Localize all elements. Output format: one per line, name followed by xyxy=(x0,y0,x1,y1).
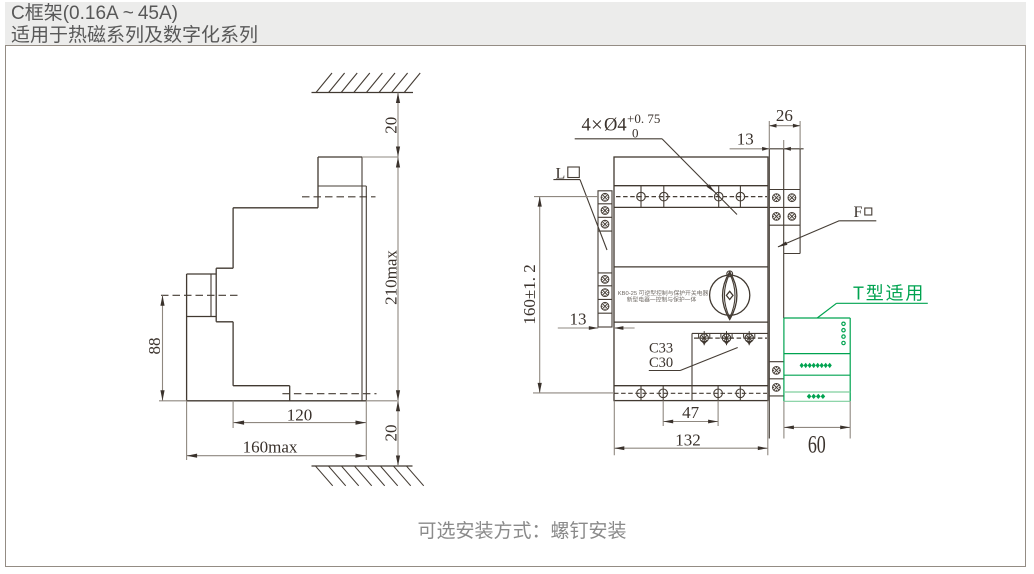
svg-text:F: F xyxy=(854,204,863,221)
svg-text:+0. 75: +0. 75 xyxy=(627,111,660,126)
svg-text:20: 20 xyxy=(381,425,400,442)
svg-text:×: × xyxy=(591,113,603,137)
svg-text:13: 13 xyxy=(570,310,587,329)
svg-text:新型电器一控制与保护一体: 新型电器一控制与保护一体 xyxy=(627,295,697,303)
svg-text:4: 4 xyxy=(582,116,591,136)
svg-text:Ø4: Ø4 xyxy=(604,116,627,136)
svg-text:C30: C30 xyxy=(649,355,673,371)
svg-text:13: 13 xyxy=(737,130,754,149)
svg-text:C33: C33 xyxy=(649,340,673,356)
svg-text:88: 88 xyxy=(145,338,164,355)
svg-text:160±1. 2: 160±1. 2 xyxy=(520,264,539,324)
svg-text:KB0-25 可逆型控制与保护开关电器: KB0-25 可逆型控制与保护开关电器 xyxy=(618,289,709,297)
svg-text:T型适用: T型适用 xyxy=(853,284,925,304)
svg-text:60: 60 xyxy=(808,430,826,458)
svg-text:210max: 210max xyxy=(381,250,400,305)
svg-text:47: 47 xyxy=(682,403,700,422)
svg-text:160max: 160max xyxy=(243,438,298,457)
svg-text:120: 120 xyxy=(287,406,313,425)
svg-text:132: 132 xyxy=(675,430,701,449)
svg-text:20: 20 xyxy=(382,117,401,134)
svg-text:26: 26 xyxy=(776,106,793,125)
